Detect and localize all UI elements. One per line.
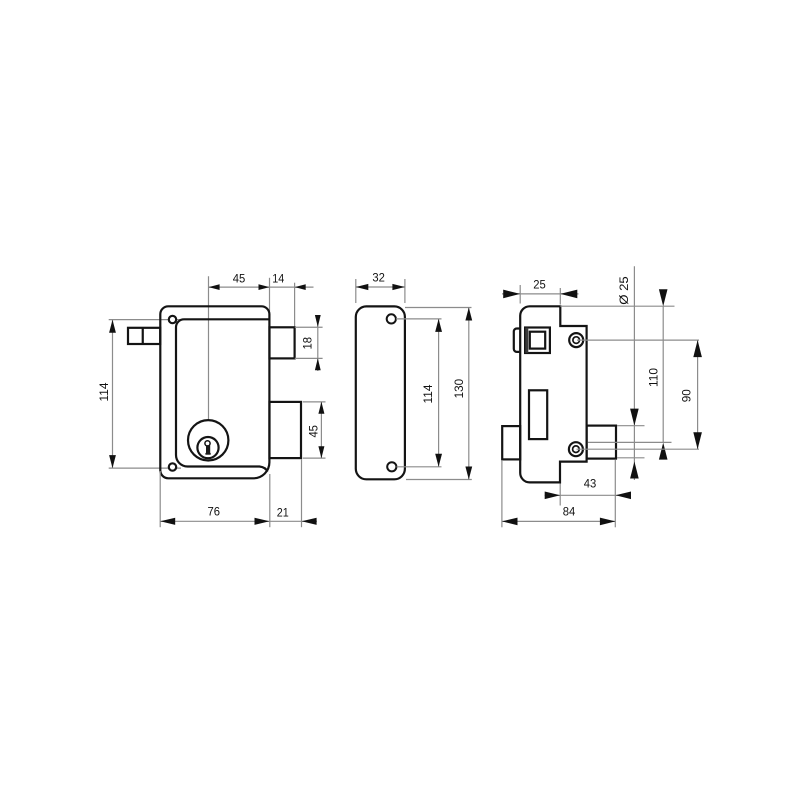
svg-text:84: 84: [563, 505, 576, 519]
svg-text:32: 32: [372, 271, 385, 285]
svg-text:76: 76: [208, 505, 221, 519]
svg-text:110: 110: [647, 368, 661, 387]
svg-text:45: 45: [233, 271, 246, 285]
svg-text:114: 114: [97, 382, 111, 401]
svg-text:43: 43: [584, 476, 597, 490]
svg-text:114: 114: [421, 384, 435, 403]
svg-text:21: 21: [277, 506, 289, 520]
svg-text:25: 25: [533, 277, 546, 291]
svg-text:45: 45: [307, 425, 321, 438]
svg-text:14: 14: [272, 271, 284, 285]
svg-text:130: 130: [452, 379, 466, 399]
svg-text:90: 90: [680, 389, 694, 402]
svg-text:Ø 25: Ø 25: [617, 276, 631, 305]
svg-text:18: 18: [301, 337, 315, 350]
